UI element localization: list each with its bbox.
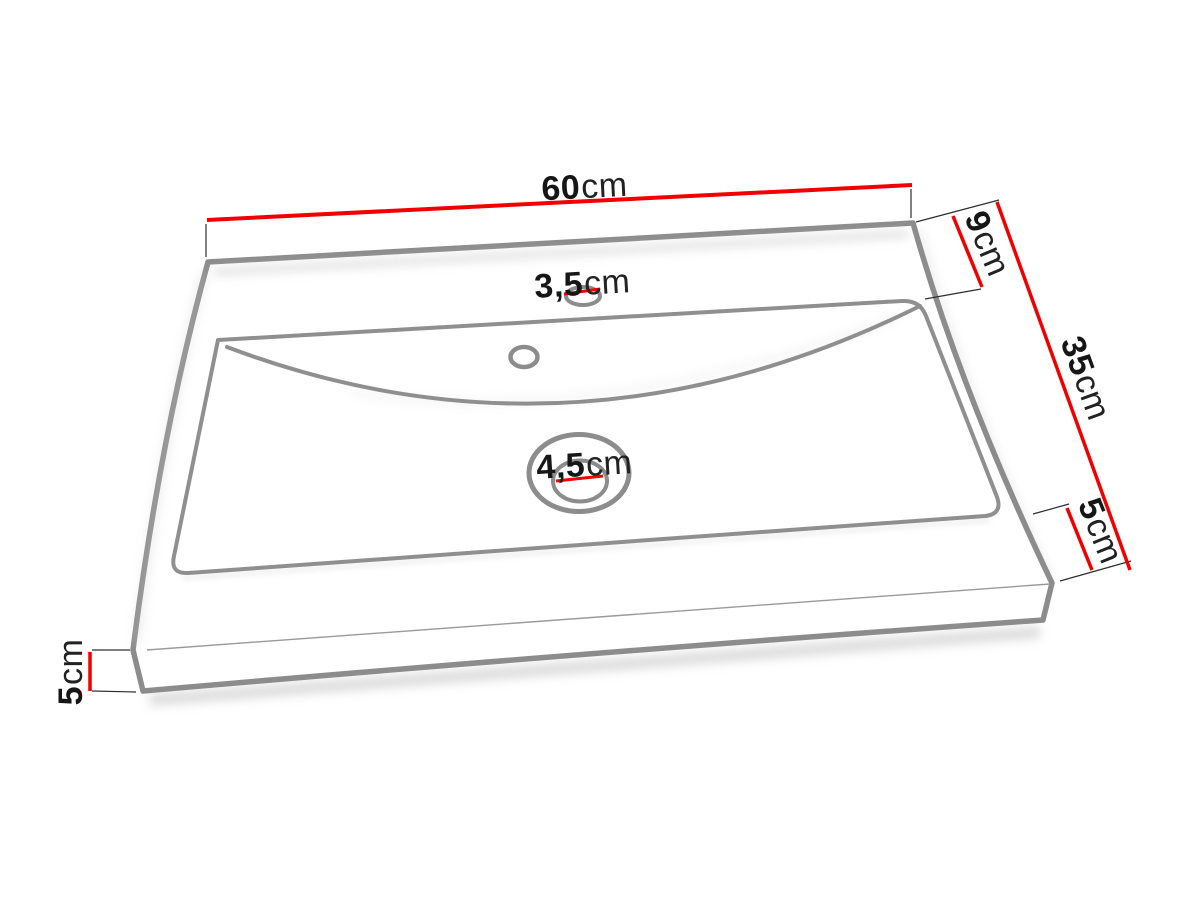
label-top-width-unit: cm [580, 166, 628, 206]
label-left-height: 5cm [52, 639, 90, 706]
label-top-width-value: 60 [540, 168, 581, 208]
label-tap-hole-value: 3,5 [533, 265, 584, 306]
ext-left-height-bottom [92, 691, 136, 692]
label-tap-hole: 3,5cm [533, 262, 631, 306]
label-drain-hole: 4,5cm [535, 443, 633, 487]
ext-front-right-top [1033, 504, 1069, 514]
drawing-canvas: 60cm 3,5cm 4,5cm 9cm 35cm 5cm 5cm [0, 0, 1200, 900]
label-drain-hole-value: 4,5 [535, 446, 586, 487]
label-drain-hole-unit: cm [585, 443, 634, 484]
label-front-right-height: 5cm [1070, 493, 1130, 569]
washbasin-dimension-drawing: 60cm 3,5cm 4,5cm 9cm 35cm 5cm 5cm [0, 0, 1200, 900]
label-left-height-value: 5 [52, 686, 90, 705]
label-top-width: 60cm [540, 166, 628, 208]
label-left-height-unit: cm [52, 639, 90, 685]
label-tap-hole-unit: cm [583, 262, 632, 303]
